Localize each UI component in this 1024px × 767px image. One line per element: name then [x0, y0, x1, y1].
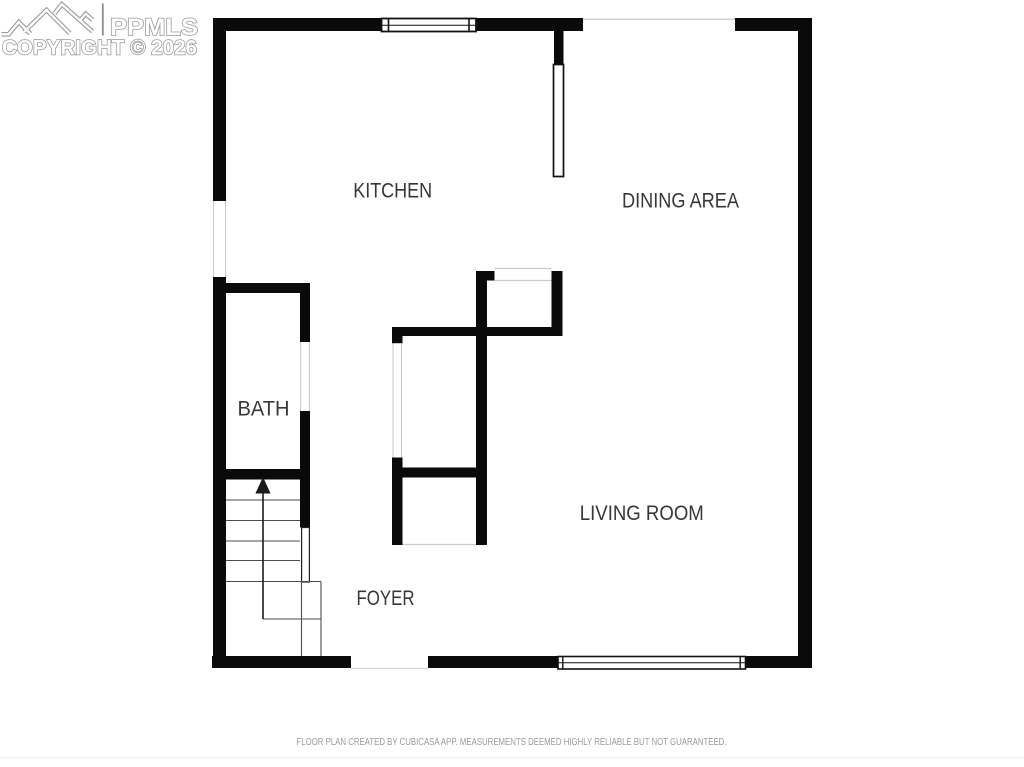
svg-text:COPYRIGHT © 2026: COPYRIGHT © 2026 — [2, 37, 197, 60]
svg-text:FOYER: FOYER — [357, 587, 415, 610]
svg-text:DINING AREA: DINING AREA — [622, 190, 739, 213]
svg-text:KITCHEN: KITCHEN — [353, 179, 432, 202]
svg-text:LIVING ROOM: LIVING ROOM — [580, 502, 704, 525]
svg-text:FLOOR PLAN CREATED BY CUBICASA: FLOOR PLAN CREATED BY CUBICASA APP. MEAS… — [297, 736, 727, 748]
svg-text:BATH: BATH — [238, 397, 290, 420]
